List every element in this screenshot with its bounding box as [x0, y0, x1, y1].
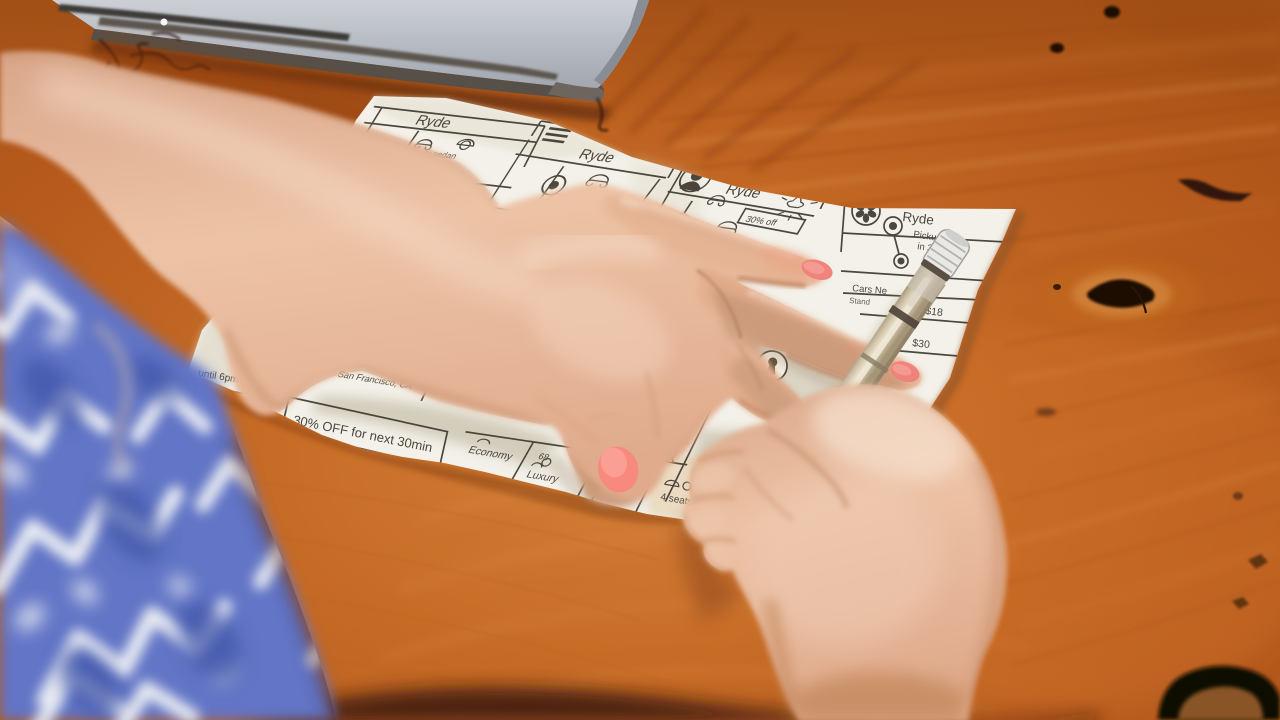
svg-text:$30: $30: [912, 337, 931, 351]
svg-text:Stand: Stand: [849, 296, 871, 307]
